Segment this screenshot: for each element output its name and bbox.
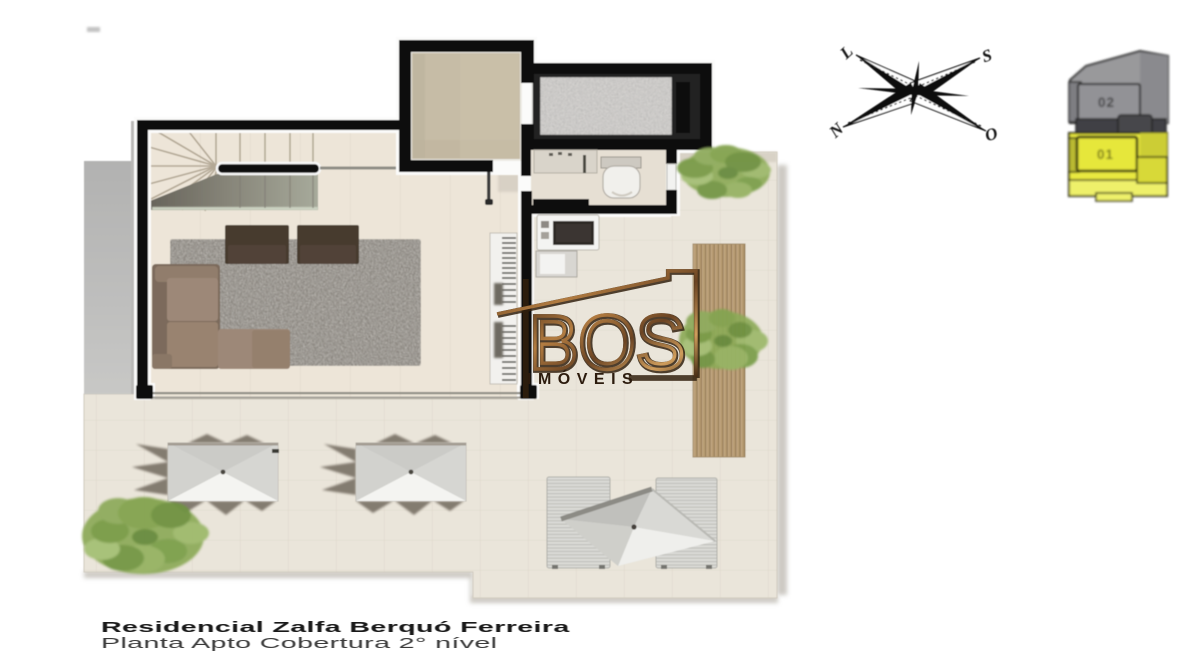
svg-text:01: 01 xyxy=(1097,147,1114,162)
svg-text:02: 02 xyxy=(1098,95,1115,110)
svg-text:IMÓVEIS: IMÓVEIS xyxy=(527,369,639,388)
